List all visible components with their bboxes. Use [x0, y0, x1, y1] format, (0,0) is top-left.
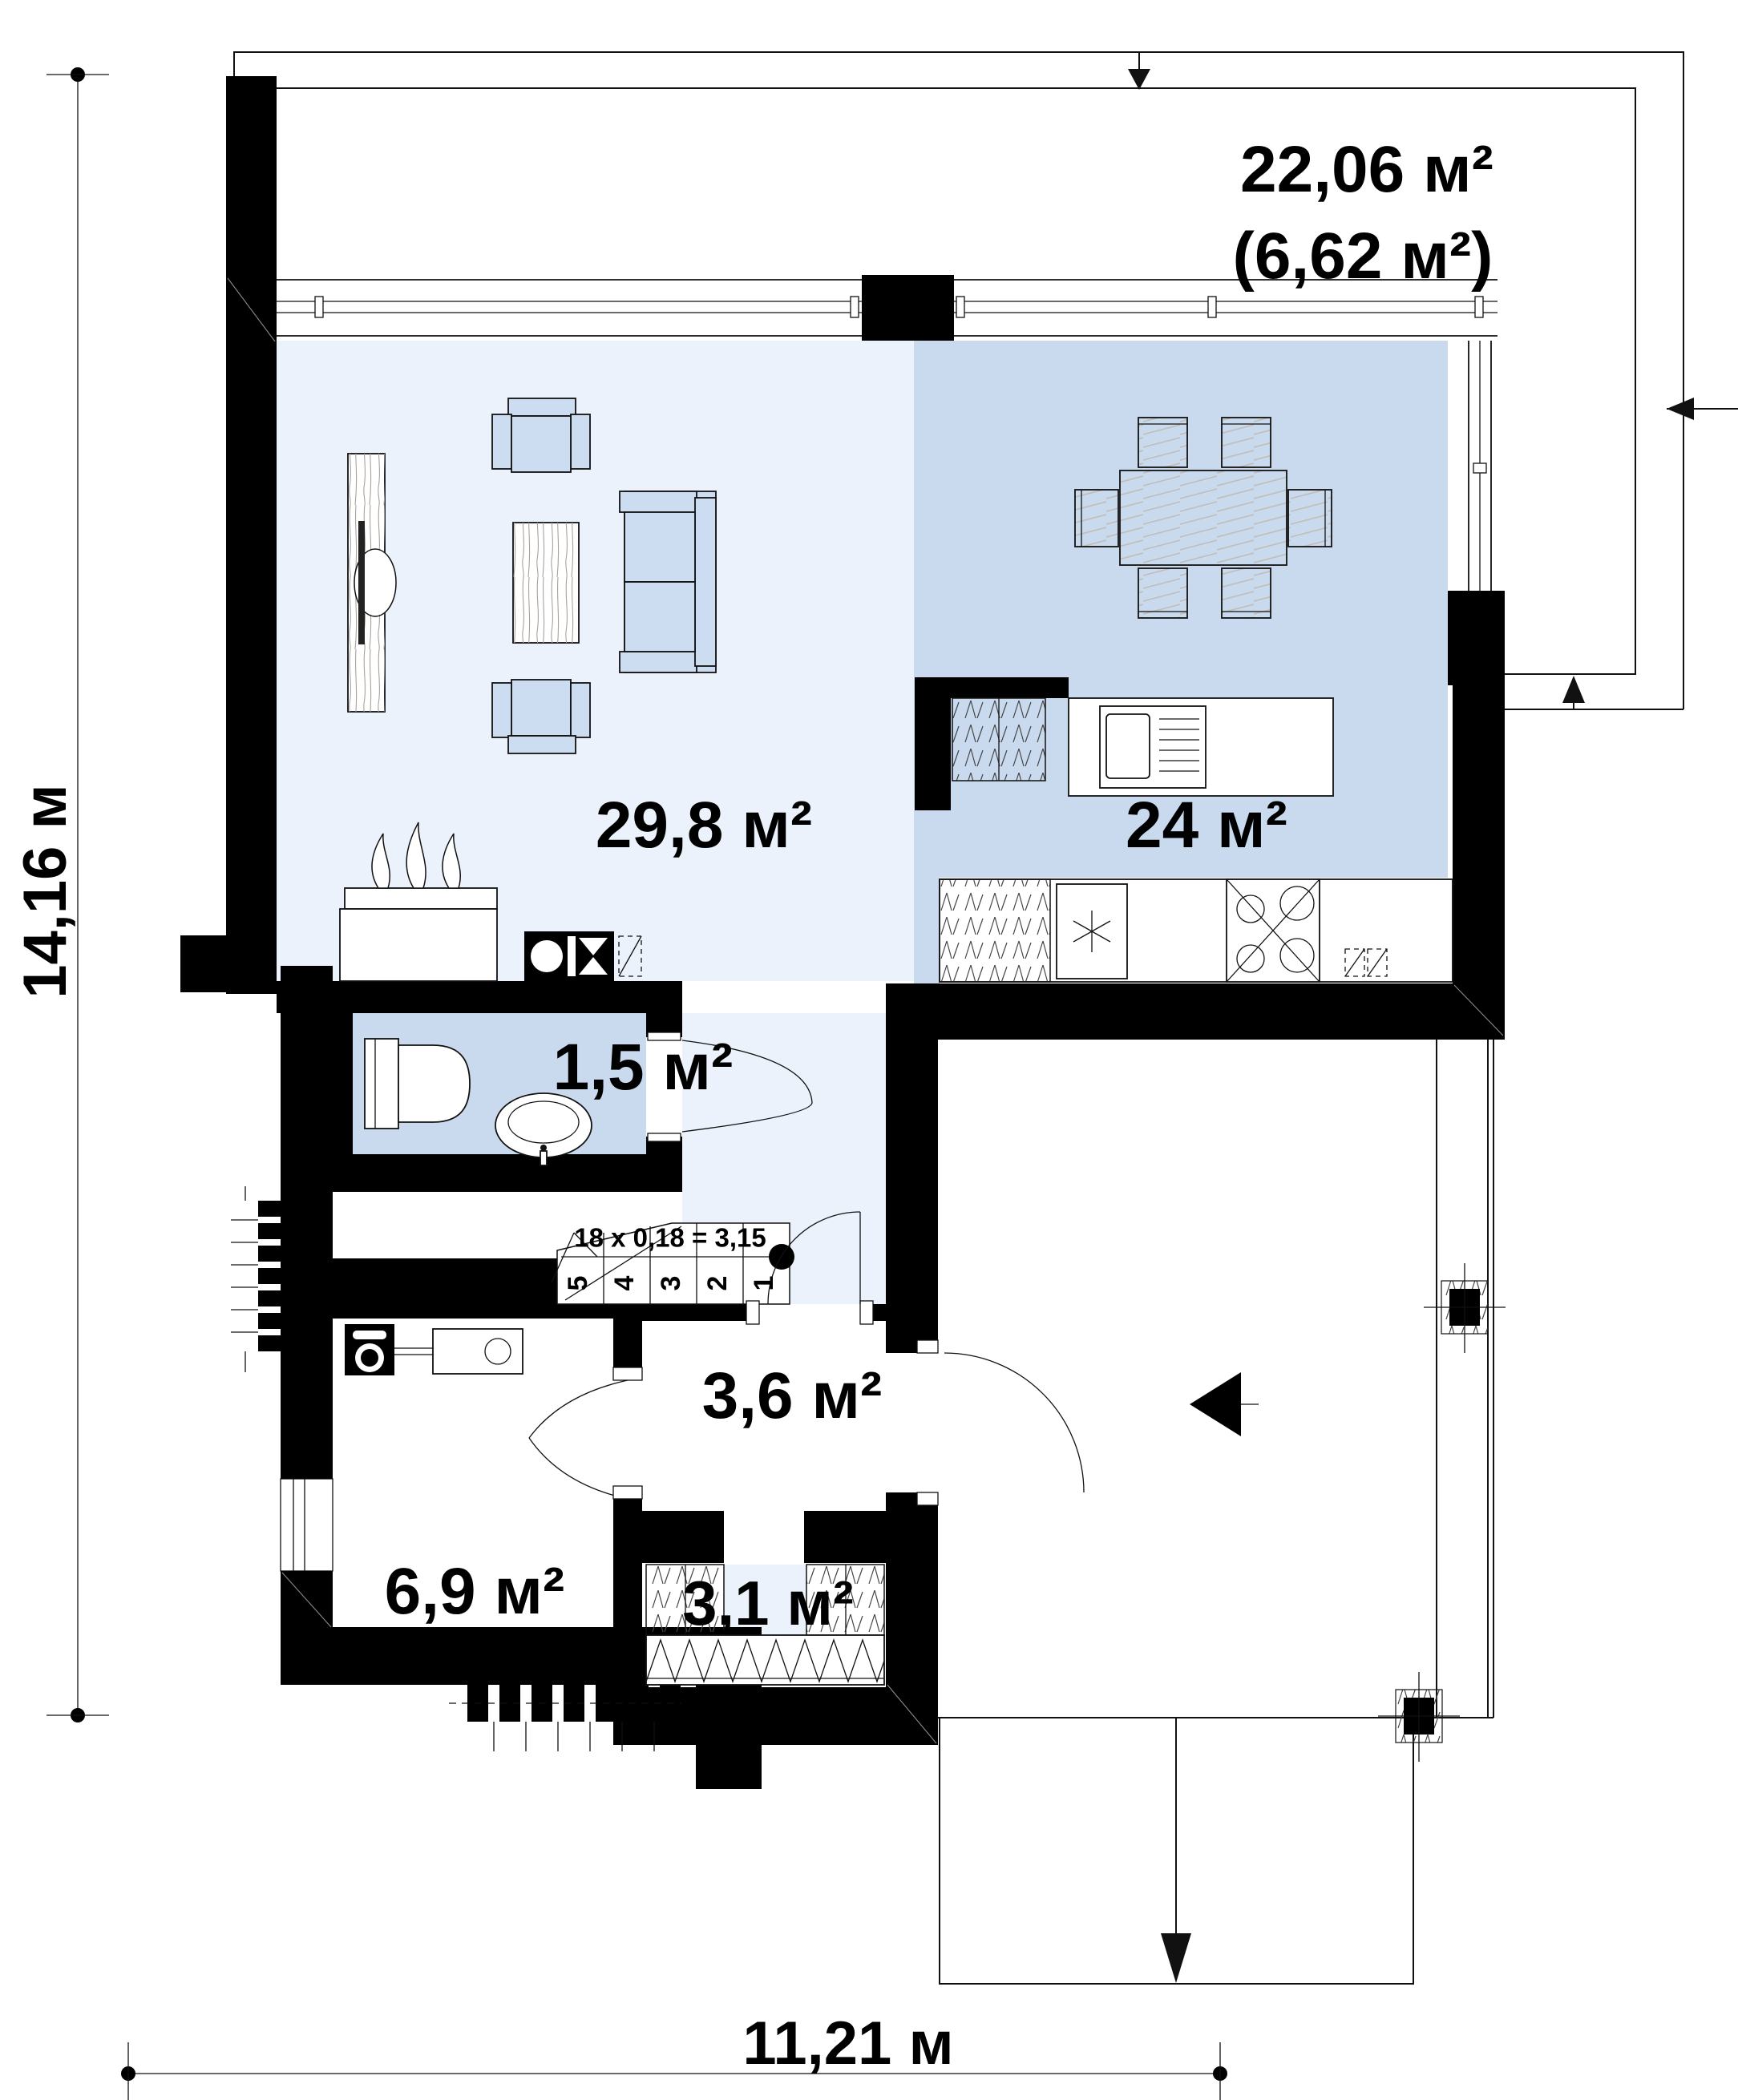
- stair-formula-label: 18 x 0,18 = 3,15: [574, 1225, 766, 1251]
- dining-side-glazing: [1469, 341, 1491, 591]
- kitchen-island: [952, 698, 1333, 796]
- entrance-arrow-icon: [1190, 1372, 1259, 1436]
- dimension-label-height: 14,16 м: [15, 784, 76, 999]
- entrance-door-jamb-top: [917, 1340, 938, 1353]
- bathroom-door-jamb-bottom: [648, 1133, 681, 1141]
- room-area-label-kitchen-dining: 24 м²: [1126, 793, 1287, 858]
- double-door-jamb-bottom: [613, 1486, 642, 1499]
- stair-step-number-4: 4: [611, 1276, 638, 1291]
- driveway: [940, 1718, 1413, 1984]
- utility-table: [394, 1329, 523, 1374]
- floor-plan-page: 22,06 м² (6,62 м²) 29,8 м² 24 м² 1,5 м² …: [0, 0, 1738, 2100]
- kitchen-floor-strip: [914, 878, 940, 983]
- utility-window: [281, 1479, 333, 1571]
- stair-step-number-3: 3: [657, 1276, 685, 1291]
- kitchen-counter: [940, 879, 1453, 982]
- coffee-table: [513, 523, 579, 643]
- driveway-arrow-icon: [1161, 1933, 1191, 1983]
- entrance-door-jamb-bottom: [917, 1492, 938, 1505]
- sofa: [620, 491, 716, 672]
- terrace-area-label: 22,06 м²: [1240, 137, 1493, 203]
- dimension-label-width: 11,21 м: [742, 2013, 953, 2074]
- floor-plan-drawing: [0, 0, 1738, 2100]
- counter-cabinet: [940, 879, 1050, 982]
- hall-door-jamb-left: [746, 1301, 759, 1324]
- stair-step-number-1: 1: [750, 1276, 778, 1291]
- double-door-jamb-top: [613, 1367, 642, 1380]
- sink-icon: [1100, 706, 1206, 788]
- fridge-icon: [1057, 884, 1127, 979]
- stair-step-number-2: 2: [704, 1276, 731, 1291]
- hanger-rail: [646, 1635, 884, 1685]
- room-area-label-hall: 3,6 м²: [702, 1363, 883, 1429]
- toilet-icon: [365, 1039, 470, 1129]
- hall-door-jamb-right: [860, 1301, 873, 1324]
- room-area-label-utility: 6,9 м²: [385, 1559, 565, 1625]
- west-exterior-steps: [231, 1186, 285, 1372]
- room-area-label-bathroom: 1,5 м²: [553, 1035, 734, 1100]
- room-area-label-living: 29,8 м²: [596, 793, 812, 858]
- hob-icon: [1227, 879, 1320, 982]
- washing-machine-icon: [345, 1324, 394, 1375]
- terrace-covered-area-label: (6,62 м²): [1233, 224, 1493, 289]
- stair-step-number-5: 5: [564, 1276, 592, 1291]
- room-area-label-wardrobe: 3,1 м²: [682, 1572, 854, 1634]
